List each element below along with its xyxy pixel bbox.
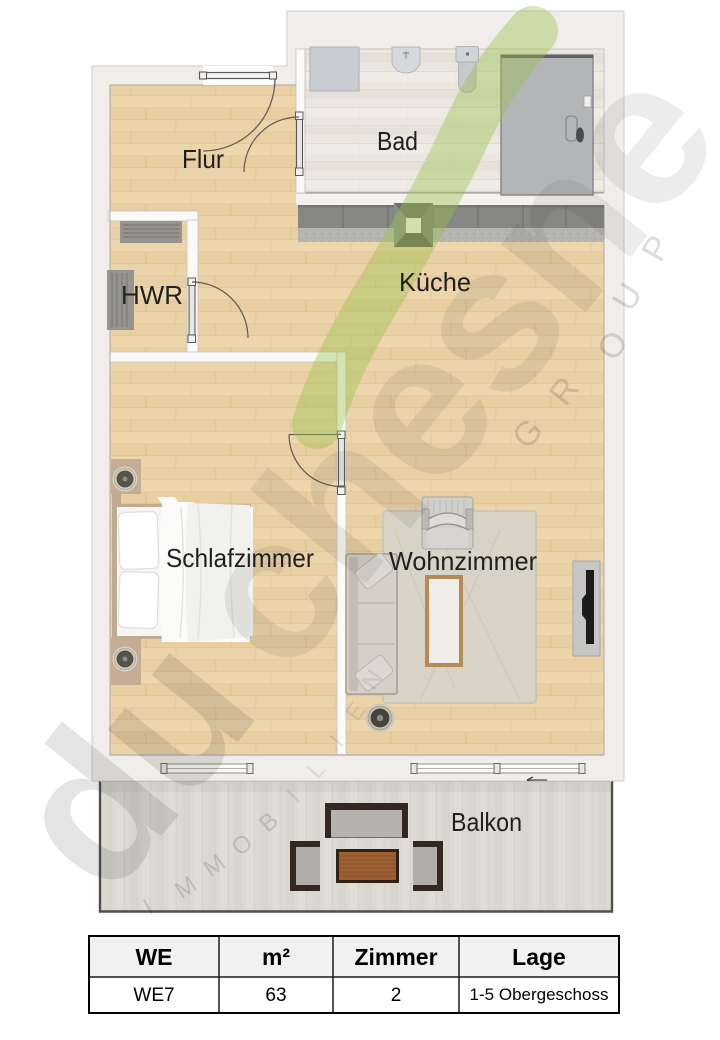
svg-text:WE7: WE7 [133, 985, 174, 1006]
svg-text:HWR: HWR [121, 280, 183, 310]
svg-text:Wohnzimmer: Wohnzimmer [389, 546, 537, 576]
svg-text:1-5 Obergeschoss: 1-5 Obergeschoss [470, 985, 609, 1004]
svg-text:Bad: Bad [377, 126, 418, 156]
svg-text:WE: WE [135, 944, 172, 970]
svg-text:2: 2 [391, 985, 402, 1006]
svg-text:Lage: Lage [512, 944, 566, 970]
svg-text:Küche: Küche [399, 267, 471, 297]
svg-text:Flur: Flur [182, 144, 224, 174]
svg-text:Schlafzimmer: Schlafzimmer [166, 543, 314, 573]
svg-text:m²: m² [262, 944, 290, 970]
svg-text:63: 63 [265, 985, 286, 1006]
svg-text:Balkon: Balkon [451, 807, 522, 837]
svg-text:Zimmer: Zimmer [354, 944, 437, 970]
